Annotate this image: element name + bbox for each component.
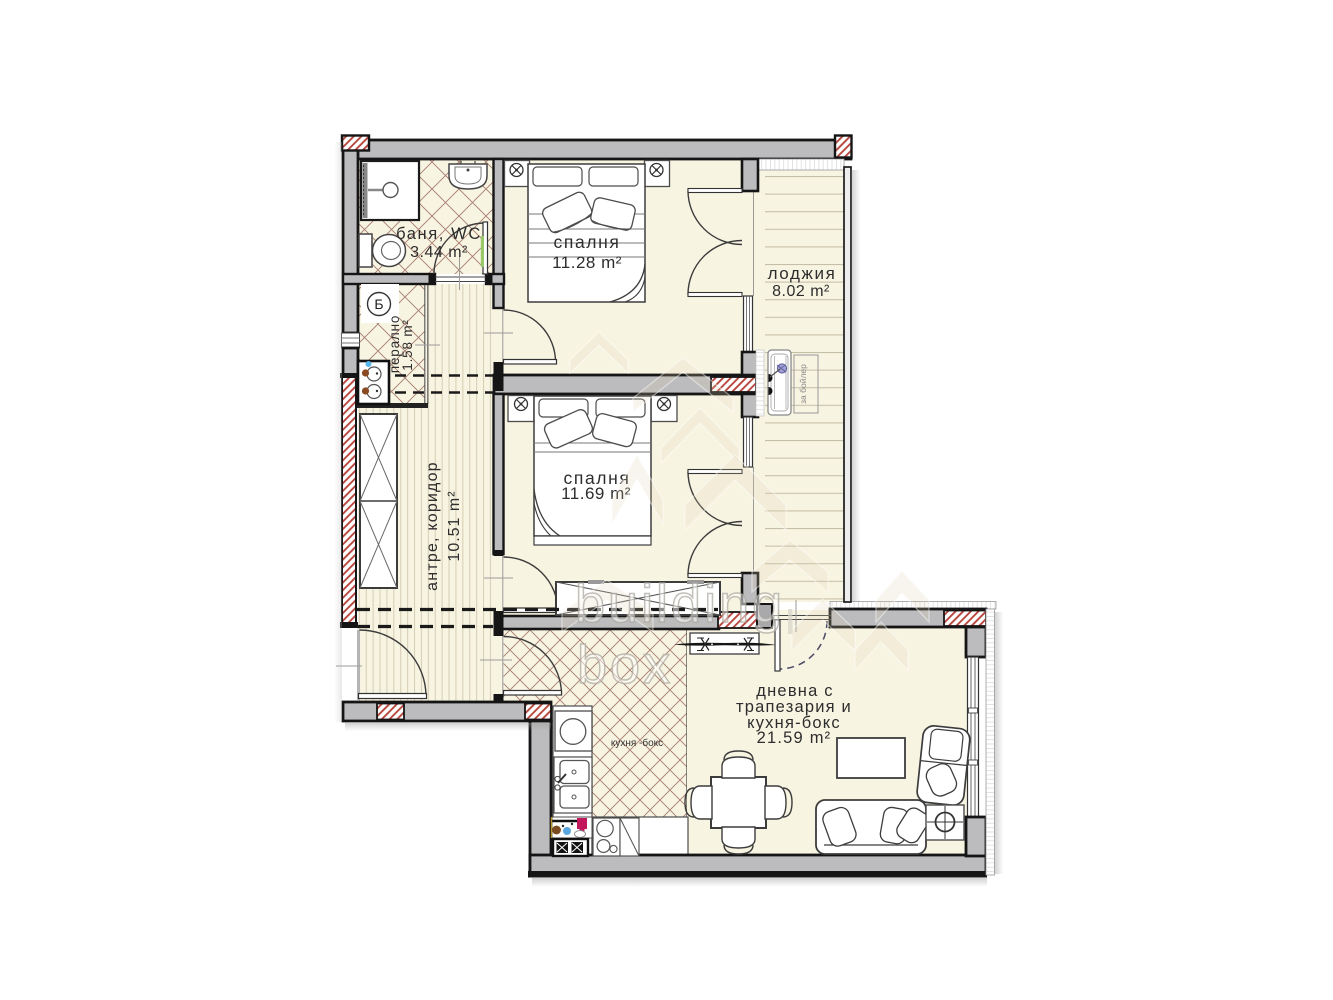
svg-text:11.28 m²: 11.28 m² — [552, 253, 622, 272]
svg-text:21.59 m²: 21.59 m² — [757, 729, 832, 747]
svg-text:кухня -бокс: кухня -бокс — [611, 737, 663, 749]
svg-text:1.58 m²: 1.58 m² — [400, 319, 415, 370]
svg-text:спалня: спалня — [554, 232, 621, 252]
svg-text:лоджия: лоджия — [768, 264, 837, 283]
svg-text:Б: Б — [374, 296, 383, 312]
svg-text:box: box — [577, 635, 673, 695]
svg-text:антре, коридор: антре, коридор — [424, 461, 441, 591]
svg-text:8.02 m²: 8.02 m² — [772, 283, 830, 300]
svg-text:building: building — [575, 574, 785, 634]
svg-text:3.44 m²: 3.44 m² — [410, 244, 468, 261]
svg-text:за бойлер: за бойлер — [798, 364, 808, 404]
svg-text:баня, WC: баня, WC — [396, 225, 482, 243]
svg-text:10.51 m²: 10.51 m² — [446, 490, 463, 561]
